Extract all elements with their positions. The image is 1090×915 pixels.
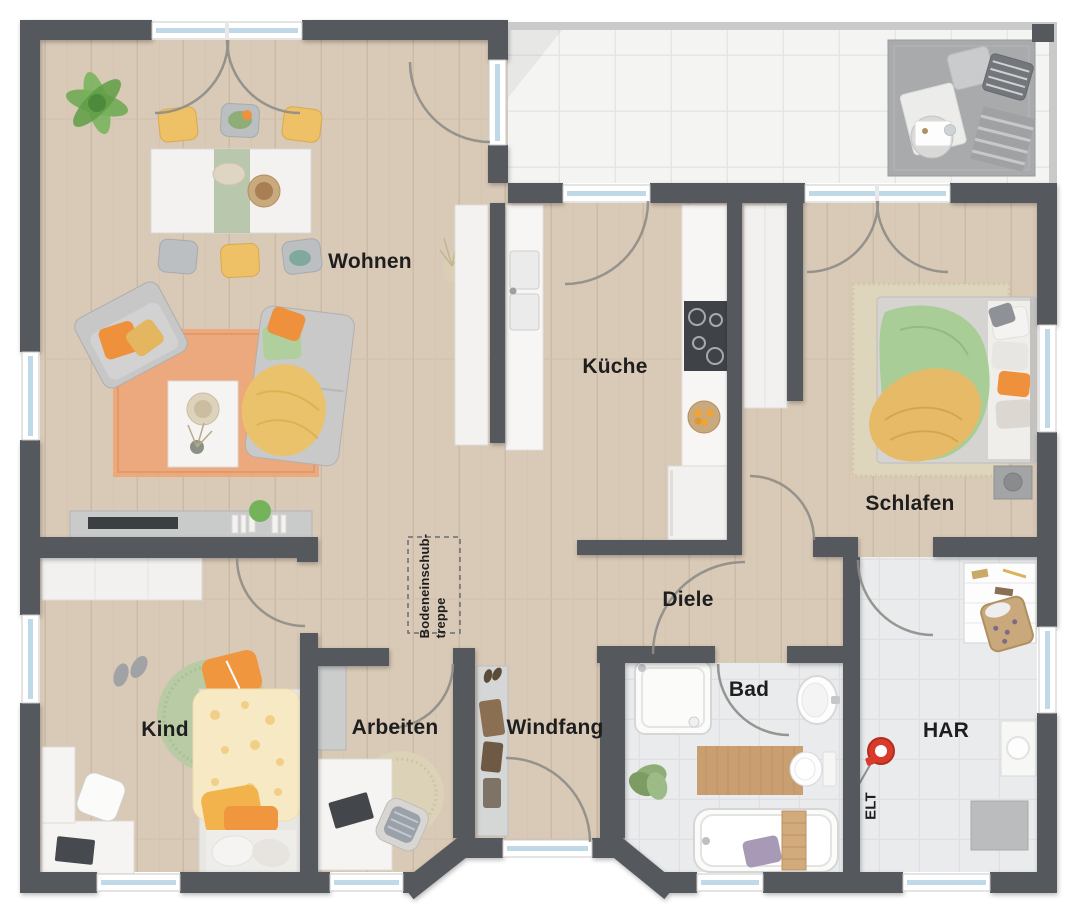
room-label-diele: Diele bbox=[662, 588, 713, 612]
kitchen-sink bbox=[510, 251, 539, 289]
window-bottom-kids bbox=[97, 874, 180, 891]
window-french-door bbox=[152, 22, 302, 39]
toilet bbox=[823, 752, 836, 786]
hall-wardrobe bbox=[744, 205, 787, 408]
room-label-wohnen: Wohnen bbox=[328, 250, 412, 274]
room-label-windfang: Windfang bbox=[506, 716, 603, 740]
room-label-har: HAR bbox=[923, 719, 969, 743]
entry-closet bbox=[477, 666, 508, 836]
storage-box bbox=[971, 801, 1028, 850]
floor-plan: Wohnen Küche Schlafen Diele Kind Arbeite… bbox=[0, 0, 1090, 915]
room-label-kind: Kind bbox=[141, 718, 188, 742]
window-bottom-office bbox=[330, 874, 403, 891]
attic-hatch-label: Bodeneinschub- treppe bbox=[417, 534, 450, 639]
window-bedroom-doors bbox=[805, 185, 950, 202]
window-kitchen-door bbox=[563, 185, 650, 202]
window-terrace-side-door bbox=[489, 60, 506, 145]
window-right-bedroom bbox=[1039, 325, 1056, 432]
coffee-table bbox=[168, 381, 238, 467]
tub-caddy bbox=[782, 811, 806, 870]
dining-set bbox=[151, 103, 323, 278]
window-bottom-utility bbox=[903, 874, 990, 891]
window-left-kids bbox=[22, 615, 39, 703]
room-label-arbeiten: Arbeiten bbox=[352, 716, 439, 740]
room-label-bad: Bad bbox=[729, 678, 769, 702]
room-label-kueche: Küche bbox=[582, 355, 647, 379]
office-cabinet bbox=[317, 666, 346, 750]
window-left-living bbox=[22, 352, 39, 440]
attic-hatch-label-line1: Bodeneinschub- bbox=[417, 534, 433, 639]
bedroom bbox=[853, 284, 1037, 499]
attic-hatch-label-line2: treppe bbox=[433, 534, 449, 639]
entry-door bbox=[503, 840, 592, 857]
window-right-utility bbox=[1039, 627, 1056, 713]
room-label-schlafen: Schlafen bbox=[865, 492, 954, 516]
floor-plan-drawing bbox=[0, 0, 1090, 915]
room-label-elt: ELT bbox=[863, 792, 880, 820]
fridge bbox=[668, 466, 727, 540]
window-bottom-bath bbox=[697, 874, 763, 891]
shower bbox=[635, 661, 711, 734]
fruit-bowl bbox=[688, 401, 720, 433]
terrace bbox=[888, 40, 1036, 176]
